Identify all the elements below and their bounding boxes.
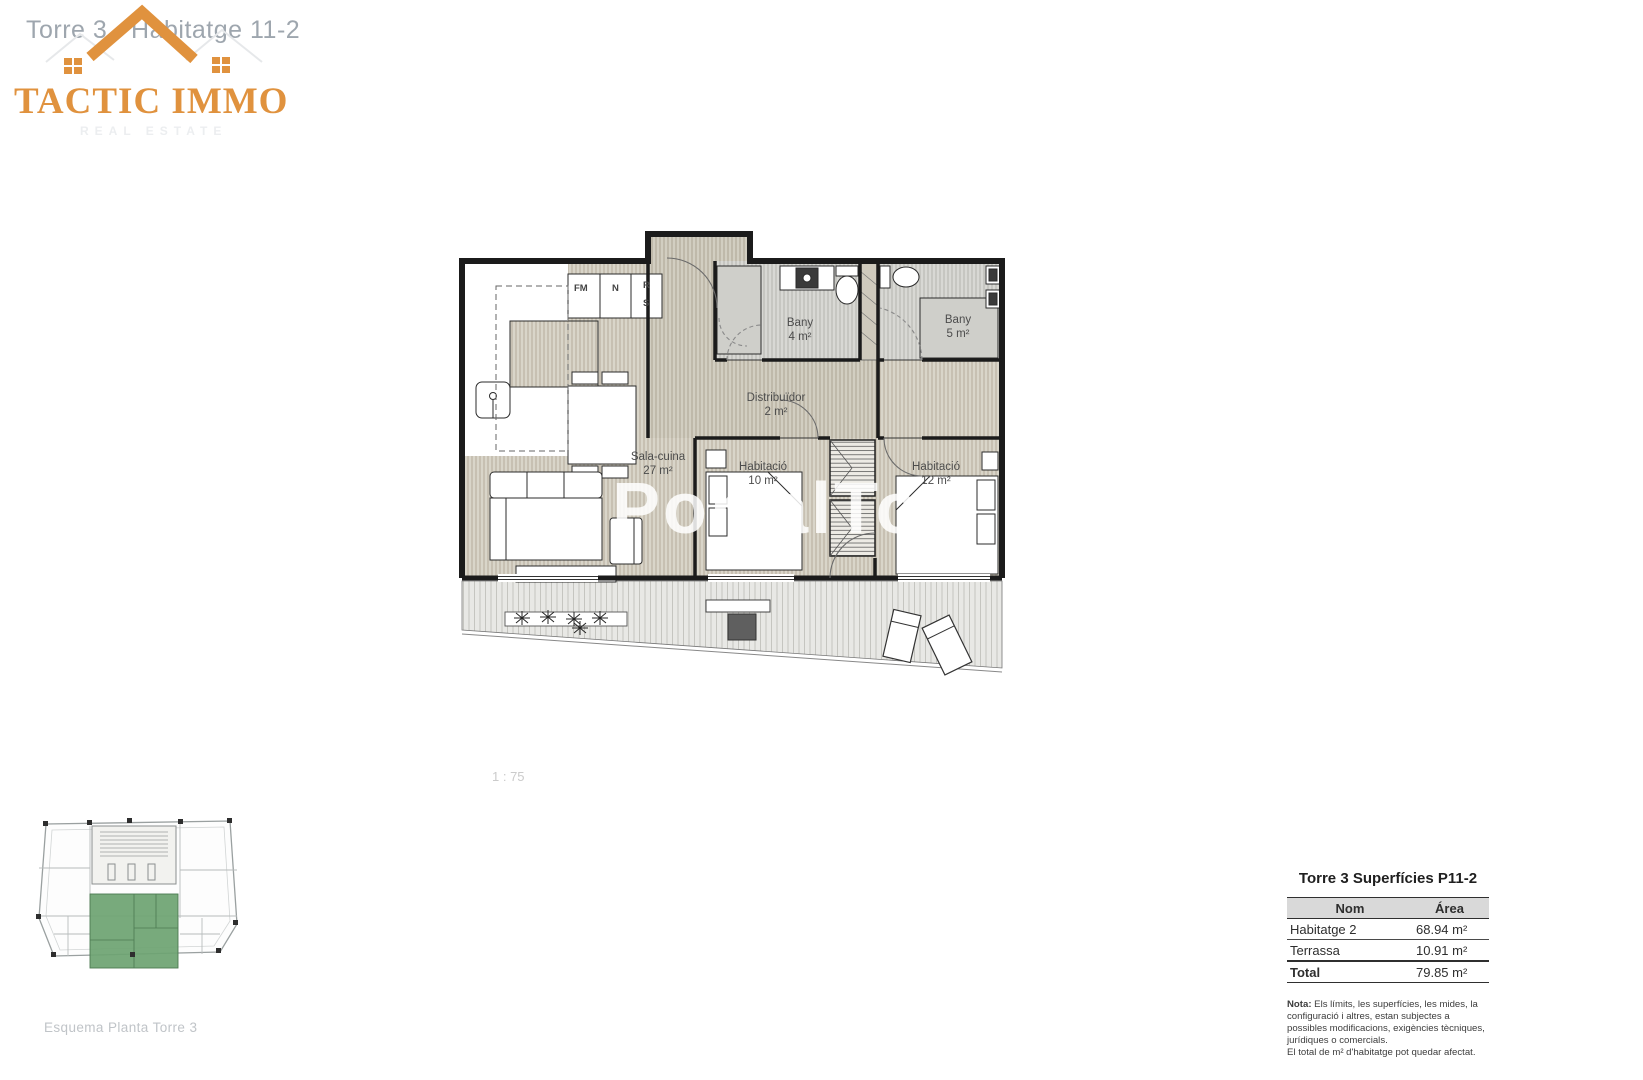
logo-tagline: REAL ESTATE bbox=[80, 124, 227, 138]
note-body: Els límits, les superfícies, les mides, … bbox=[1287, 999, 1485, 1046]
logo-window-icon-left bbox=[64, 58, 82, 74]
room-label-bany-4: Bany4 m² bbox=[770, 316, 830, 344]
floorplan-sheet: { "page": { "title": "Torre 3 - Habitatg… bbox=[0, 0, 1643, 1080]
note-footer: El total de m² d'habitatge pot quedar af… bbox=[1287, 1047, 1485, 1059]
mini-floor-plan bbox=[30, 806, 248, 978]
table-row: Terrassa 10.91 m² bbox=[1287, 940, 1489, 962]
summary-header-row: Nom Área bbox=[1287, 897, 1489, 919]
summary-col-area: Área bbox=[1413, 898, 1486, 918]
summary-table: Nom Área Habitatge 2 68.94 m² Terrassa 1… bbox=[1287, 897, 1489, 983]
floor-plan-drawing bbox=[450, 226, 1015, 678]
room-label-distribuidor: Distribuïdor2 m² bbox=[730, 391, 822, 419]
room-label-bany-5: Bany5 m² bbox=[928, 313, 988, 341]
kitchen-unit-label-fm: FM bbox=[574, 283, 588, 294]
summary-note: Nota: Els límits, les superfícies, les m… bbox=[1287, 999, 1485, 1059]
table-row: Habitatge 2 68.94 m² bbox=[1287, 919, 1489, 940]
scale-label: 1 : 75 bbox=[492, 769, 525, 784]
summary-title: Torre 3 Superfícies P11-2 bbox=[1287, 870, 1489, 887]
kitchen-unit-label-r: R bbox=[643, 280, 650, 291]
logo-window-icon-right bbox=[212, 57, 230, 73]
table-row-total: Total 79.85 m² bbox=[1287, 962, 1489, 982]
surface-summary: Torre 3 Superfícies P11-2 Nom Área Habit… bbox=[1287, 870, 1489, 1059]
floor-plan bbox=[450, 226, 1015, 678]
mini-plan-caption: Esquema Planta Torre 3 bbox=[44, 1020, 197, 1035]
kitchen-unit-label-n: N bbox=[612, 283, 619, 294]
mini-floor-plan-drawing bbox=[30, 806, 248, 978]
summary-col-nom: Nom bbox=[1287, 898, 1413, 918]
watermark: PortalTop bbox=[612, 468, 1132, 550]
logo-wordmark: TACTIC IMMO bbox=[14, 80, 288, 123]
kitchen-unit-label-s: S bbox=[643, 298, 649, 309]
note-prefix: Nota: bbox=[1287, 999, 1312, 1010]
